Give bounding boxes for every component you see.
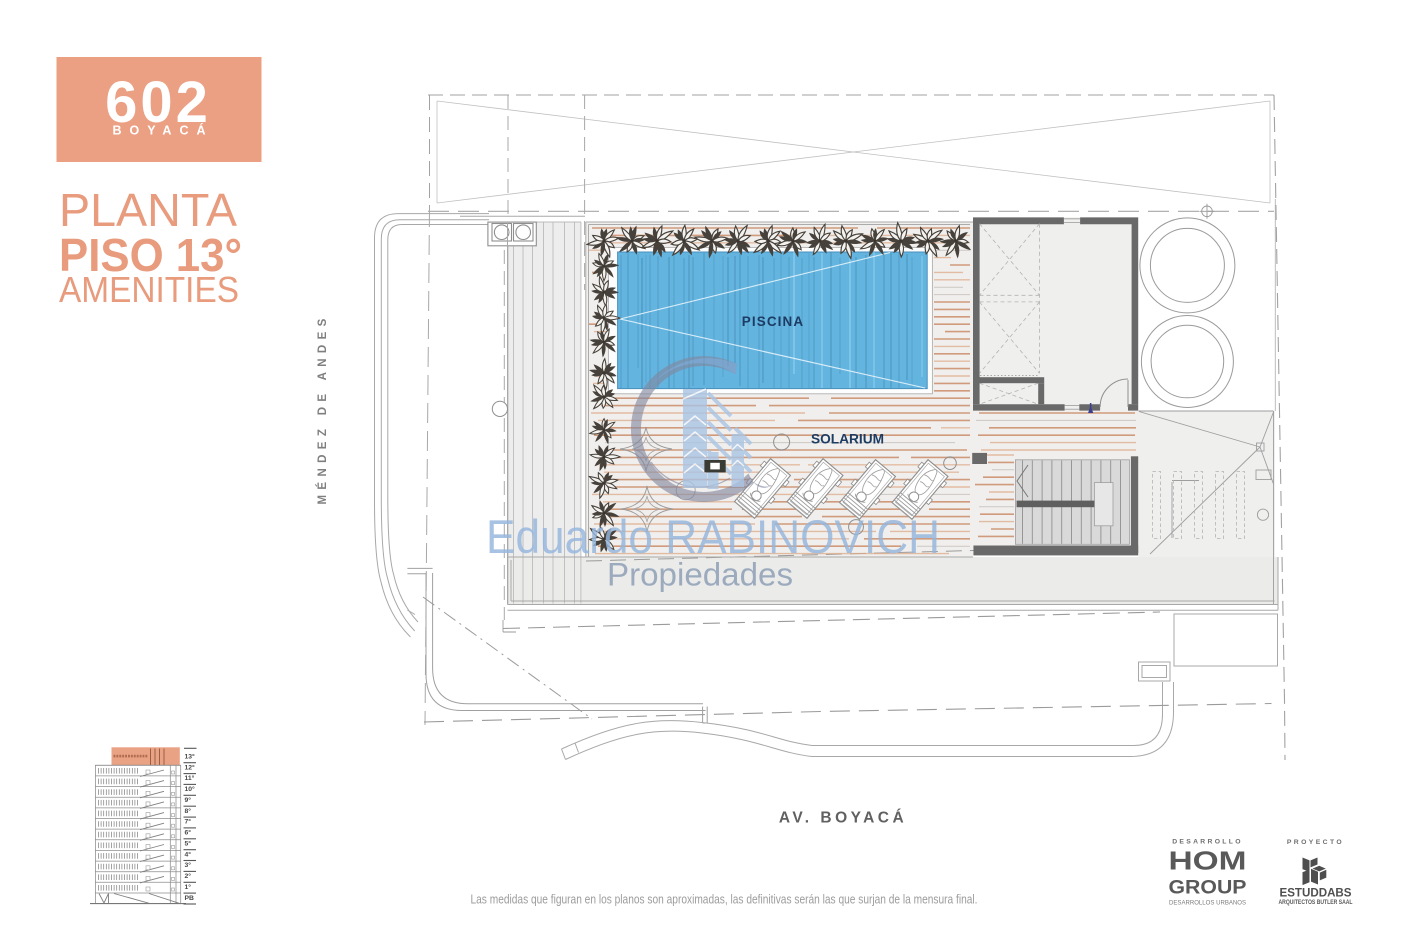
svg-text:BOYACÁ: BOYACÁ [112, 123, 213, 138]
svg-text:PB: PB [185, 895, 195, 902]
svg-text:7°: 7° [185, 818, 192, 826]
svg-text:MÉNDEZ DE ANDES: MÉNDEZ DE ANDES [316, 316, 329, 505]
svg-text:AMENITIES: AMENITIES [59, 269, 239, 310]
svg-text:2°: 2° [185, 872, 192, 880]
svg-text:10°: 10° [185, 785, 196, 793]
svg-text:11°: 11° [185, 774, 195, 782]
svg-text:Eduardo RABINOVICH: Eduardo RABINOVICH [486, 510, 940, 563]
svg-text:PROYECTO: PROYECTO [1287, 839, 1344, 846]
svg-text:AV. BOYACÁ: AV. BOYACÁ [779, 810, 907, 827]
svg-text:DESARROLLOS URBANOS: DESARROLLOS URBANOS [1169, 900, 1246, 907]
svg-text:Propiedades: Propiedades [607, 557, 793, 593]
svg-text:6°: 6° [185, 829, 192, 837]
svg-text:PISCINA: PISCINA [742, 314, 804, 329]
svg-text:5°: 5° [185, 840, 192, 848]
svg-text:ESTUDDABS: ESTUDDABS [1280, 888, 1352, 900]
svg-text:12°: 12° [185, 763, 196, 771]
svg-text:ARQUITECTOS BUTLER SAAL: ARQUITECTOS BUTLER SAAL [1279, 899, 1353, 906]
svg-text:3°: 3° [185, 861, 192, 869]
svg-text:DESARROLLO: DESARROLLO [1172, 839, 1243, 846]
svg-text:Las medidas que figuran en los: Las medidas que figuran en los planos so… [471, 892, 978, 907]
svg-text:8°: 8° [185, 807, 192, 815]
svg-text:HOM: HOM [1169, 846, 1247, 876]
svg-text:9°: 9° [185, 796, 192, 804]
svg-text:13°: 13° [185, 753, 196, 761]
svg-text:GROUP: GROUP [1169, 877, 1247, 899]
svg-text:SOLARIUM: SOLARIUM [811, 432, 884, 447]
svg-text:4°: 4° [185, 850, 192, 858]
svg-text:1°: 1° [185, 883, 192, 891]
